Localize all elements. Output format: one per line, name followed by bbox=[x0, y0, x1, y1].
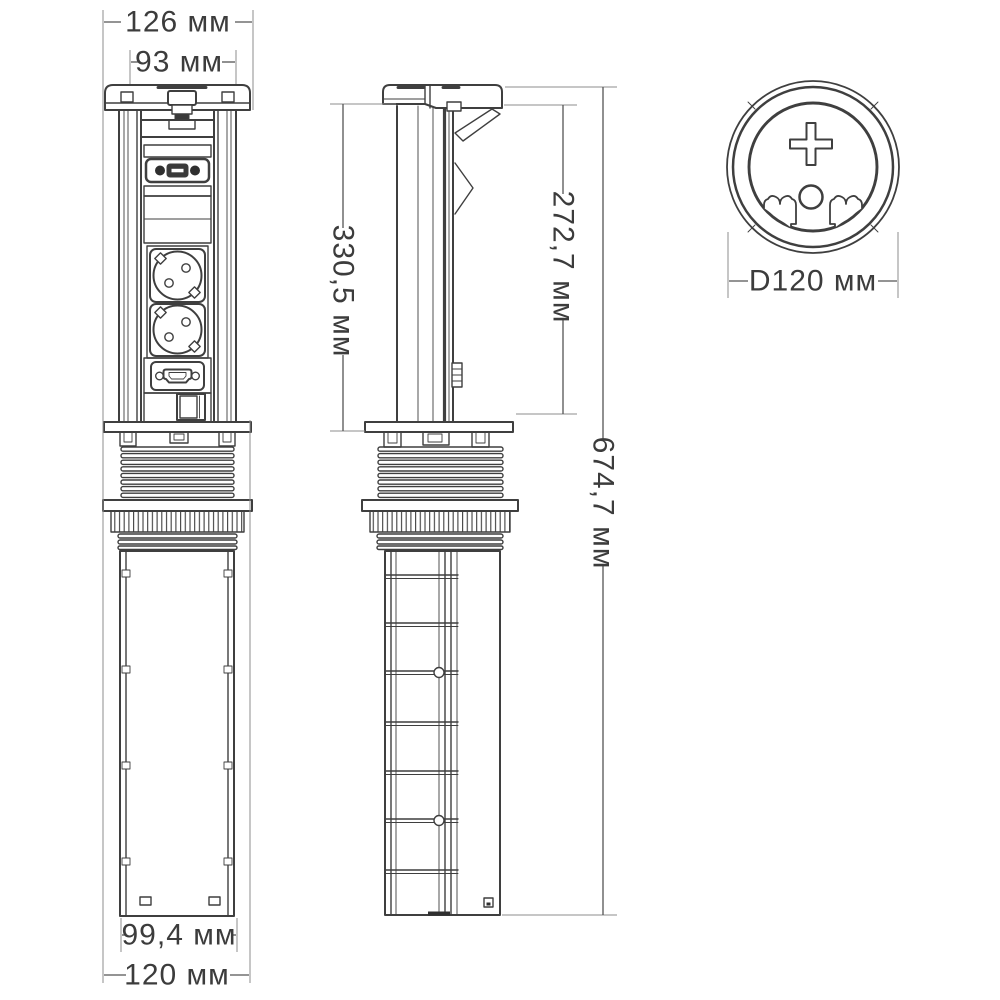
side-bracket bbox=[452, 109, 500, 387]
cable-hole-icon bbox=[800, 186, 823, 209]
front-blank-strip bbox=[144, 145, 211, 157]
top-dimensions: D120 мм bbox=[728, 232, 898, 298]
side-thread-collar bbox=[362, 447, 518, 550]
front-flange bbox=[104, 422, 251, 446]
top-view bbox=[727, 81, 899, 253]
usb-module bbox=[146, 159, 209, 182]
schuko-socket-1 bbox=[150, 249, 205, 302]
dim-label-upper-height: 330,5 мм bbox=[327, 225, 360, 358]
popup-socket-dimension-drawing: 126 мм 93 мм 99,4 мм 120 мм 330,5 мм 272… bbox=[0, 0, 1000, 1000]
hdmi-connector-icon bbox=[164, 370, 192, 383]
dim-label-column-height: 272,7 мм bbox=[547, 191, 580, 324]
side-view bbox=[362, 85, 518, 916]
dim-label-cap-width: 126 мм bbox=[125, 6, 231, 39]
dim-label-diameter: D120 мм bbox=[749, 265, 877, 298]
side-cap bbox=[383, 85, 502, 111]
front-view bbox=[103, 85, 252, 916]
usb-round-port-left-icon bbox=[155, 166, 165, 176]
usb-round-port-right-icon bbox=[190, 166, 200, 176]
dim-label-base-width: 120 мм bbox=[124, 959, 230, 992]
dim-label-total-height: 674,7 мм bbox=[587, 437, 620, 570]
front-blank-panels bbox=[144, 186, 211, 243]
front-thread-collar bbox=[103, 447, 252, 550]
schuko-socket-2 bbox=[150, 304, 205, 356]
socket-module bbox=[147, 246, 208, 358]
side-column bbox=[397, 106, 453, 422]
side-knurled-nut bbox=[370, 511, 510, 532]
side-flange bbox=[365, 422, 513, 447]
front-lower-tube bbox=[120, 551, 234, 916]
switch-module bbox=[144, 393, 211, 422]
side-lower-tube bbox=[385, 551, 500, 916]
front-mid-plate bbox=[103, 500, 252, 511]
hdmi-port-module bbox=[144, 358, 211, 393]
dim-label-tube-width: 99,4 мм bbox=[122, 919, 237, 952]
technical-drawing-canvas: 126 мм 93 мм 99,4 мм 120 мм 330,5 мм 272… bbox=[0, 0, 1000, 1000]
front-knurled-nut bbox=[111, 511, 244, 532]
dim-label-body-width: 93 мм bbox=[135, 46, 223, 79]
plus-marker-icon bbox=[790, 123, 832, 165]
side-rungs bbox=[386, 575, 458, 874]
side-mid-plate bbox=[362, 500, 518, 511]
